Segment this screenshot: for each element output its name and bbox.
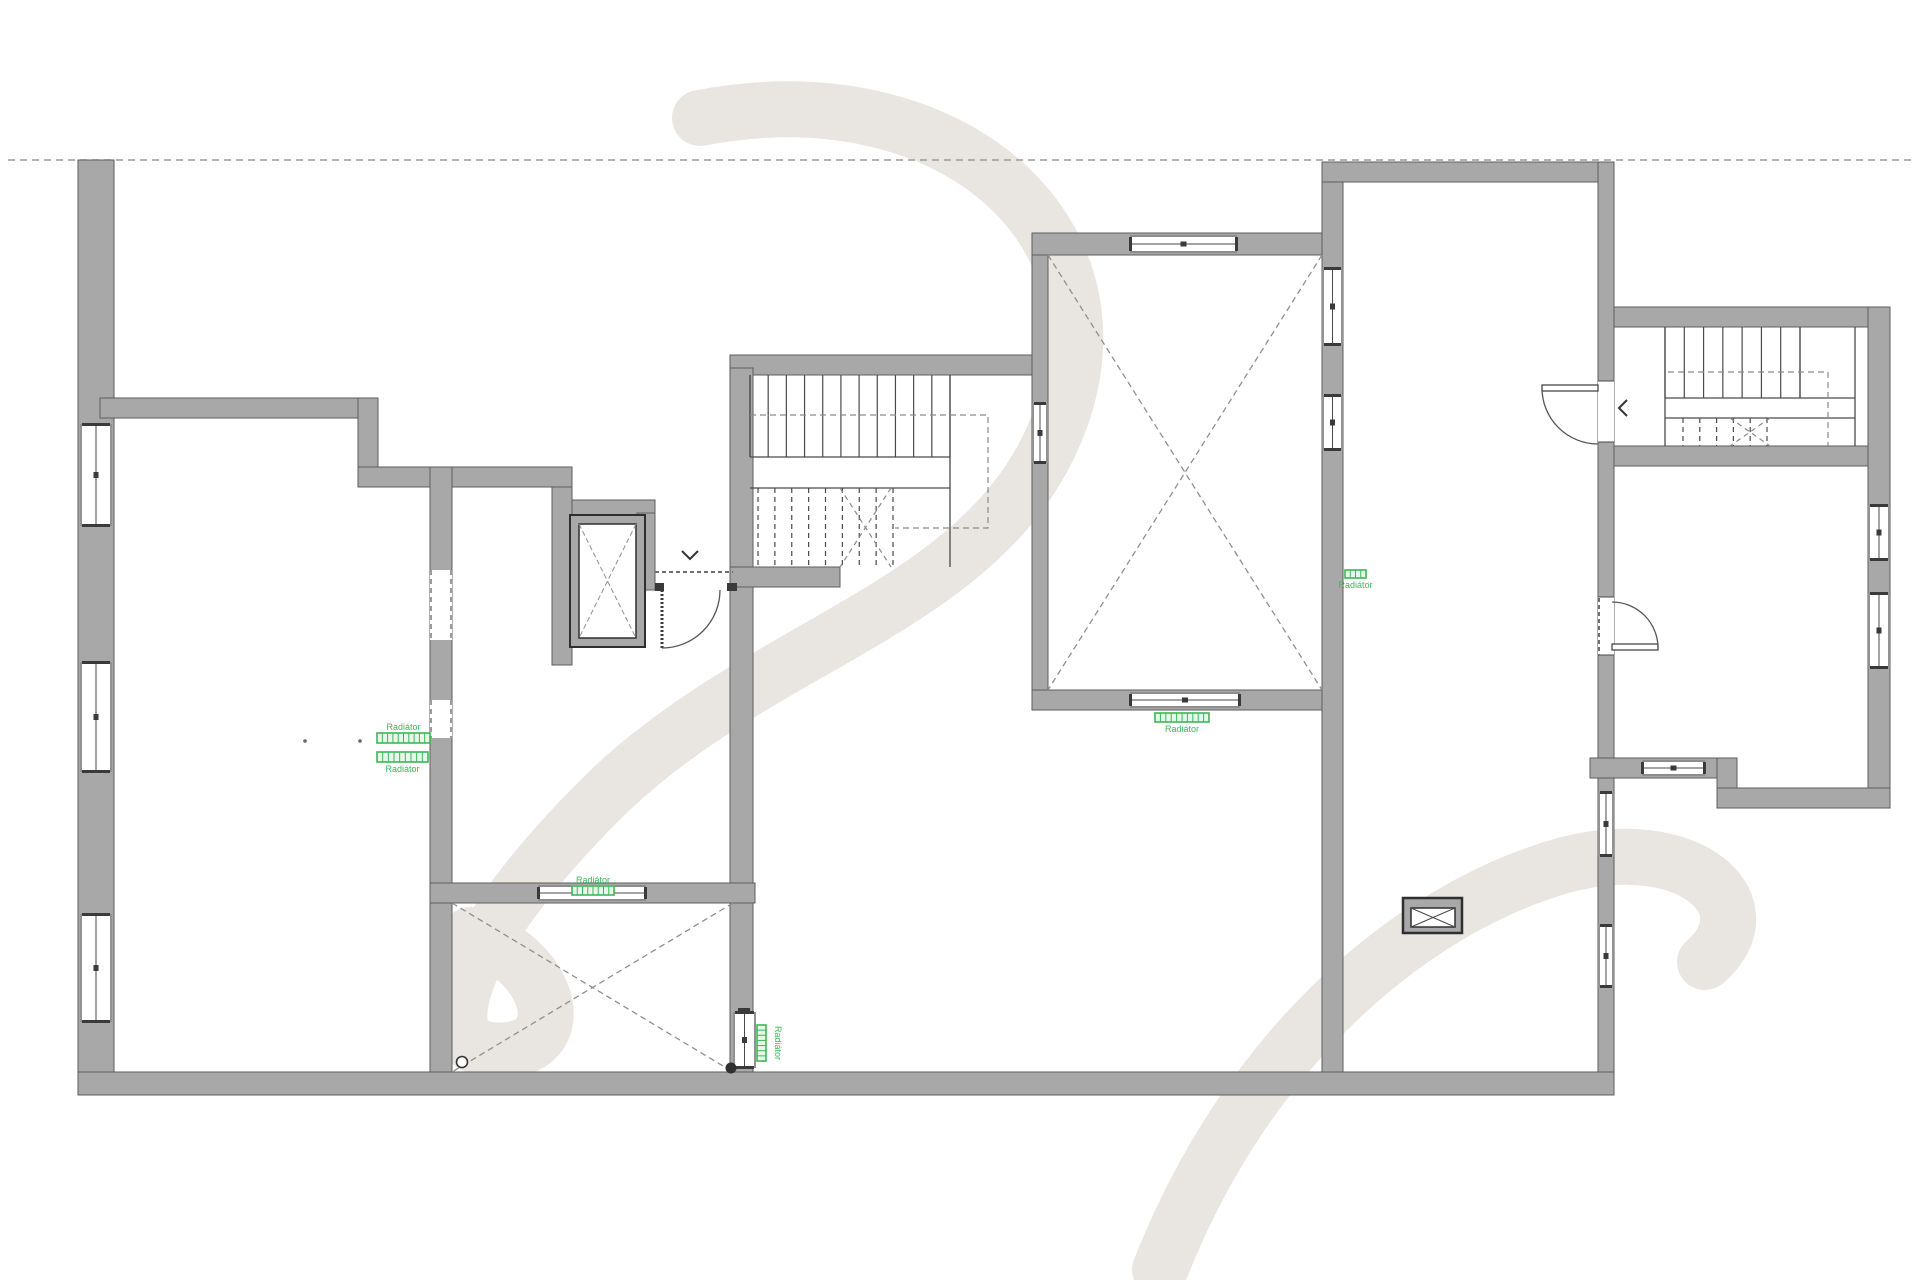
floor-plan-page: RadiátorRadiátorRadiátorRadiátorRadiátor… xyxy=(0,0,1920,1280)
window-center-tick xyxy=(1330,420,1335,426)
window-jamb-tick xyxy=(1324,267,1341,270)
wall xyxy=(730,355,1032,375)
window-jamb-tick xyxy=(82,913,110,916)
wall xyxy=(430,467,452,1072)
door-swing-arc xyxy=(1612,602,1658,648)
window-jamb-tick xyxy=(1703,762,1706,774)
radiator-label: Radiátor xyxy=(576,875,610,885)
doors-layer xyxy=(662,385,1658,650)
window-jamb-tick xyxy=(1324,394,1341,397)
wall xyxy=(1614,446,1868,466)
window-jamb-tick xyxy=(1129,694,1132,706)
window-center-tick xyxy=(1877,628,1882,634)
window-center-tick xyxy=(1604,953,1609,959)
window-center-tick xyxy=(1671,766,1677,771)
window-center-tick xyxy=(1038,430,1043,436)
window-jamb-tick xyxy=(82,524,110,527)
window-jamb-tick xyxy=(1235,237,1238,251)
stair-walkline xyxy=(750,415,988,528)
radiator-label: Radiátor xyxy=(385,764,419,774)
window-center-tick xyxy=(1182,698,1188,703)
window-jamb-tick xyxy=(735,1066,754,1069)
window-jamb-tick xyxy=(1600,854,1612,857)
radiator-label: Radiátor xyxy=(773,1026,783,1060)
window-jamb-tick xyxy=(1870,666,1888,669)
window-center-tick xyxy=(1604,821,1609,827)
window-jamb-tick xyxy=(1324,448,1341,451)
window-jamb-tick xyxy=(82,1020,110,1023)
window-center-tick xyxy=(94,965,99,971)
corner-dot-symbol xyxy=(726,1063,737,1074)
floor-plan-svg: RadiátorRadiátorRadiátorRadiátorRadiátor… xyxy=(0,0,1920,1280)
window-jamb-tick xyxy=(1600,924,1612,927)
wall xyxy=(100,398,378,418)
window-center-tick xyxy=(1181,242,1187,247)
entrance-chevron-down-icon xyxy=(682,551,698,559)
window-jamb-tick xyxy=(537,887,540,899)
plan-dot xyxy=(358,739,362,743)
wall xyxy=(730,567,840,587)
window-jamb-tick xyxy=(82,770,110,773)
door-leaf xyxy=(1612,644,1658,650)
door-swing-arc xyxy=(662,590,720,648)
opening-gap xyxy=(1598,381,1614,442)
stair-break-diagonal xyxy=(840,488,891,567)
door-leaf xyxy=(1542,385,1598,391)
window-jamb-tick xyxy=(1238,694,1241,706)
window-jamb-tick xyxy=(735,1011,754,1014)
window-jamb-tick xyxy=(82,661,110,664)
opening-gap xyxy=(430,570,452,640)
window-jamb-tick xyxy=(1870,504,1888,507)
window-jamb-tick xyxy=(1324,343,1341,346)
window-jamb-tick xyxy=(644,887,647,899)
window-jamb-tick xyxy=(1600,791,1612,794)
radiator xyxy=(377,752,428,762)
shafts-layer xyxy=(452,255,1322,1072)
radiator-label: Radiátor xyxy=(1338,580,1372,590)
stair-walkline xyxy=(1668,372,1828,446)
plan-dot xyxy=(303,739,307,743)
wall xyxy=(1322,162,1614,182)
window-jamb-tick xyxy=(1870,592,1888,595)
window-jamb-tick xyxy=(1641,762,1644,774)
wall xyxy=(1032,233,1048,710)
wall xyxy=(358,467,572,487)
window-jamb-tick xyxy=(1034,461,1046,464)
corner-circle-symbol xyxy=(457,1057,468,1068)
wall xyxy=(78,1072,1614,1095)
window-jamb-tick xyxy=(82,423,110,426)
opening-gap xyxy=(430,700,452,738)
window-center-tick xyxy=(94,714,99,720)
window-jamb-tick xyxy=(1870,558,1888,561)
window-center-tick xyxy=(1877,530,1882,536)
walls-layer xyxy=(78,160,1890,1095)
window-center-tick xyxy=(94,472,99,478)
radiator-label: Radiátor xyxy=(1165,724,1199,734)
window-center-tick xyxy=(1330,304,1335,310)
wall xyxy=(1614,307,1890,327)
door-jamb xyxy=(655,583,664,591)
window-jamb-tick xyxy=(1600,985,1612,988)
wall xyxy=(730,368,753,1072)
window-center-tick xyxy=(742,1037,747,1043)
radiator-label: Radiátor xyxy=(386,722,420,732)
door-swing-arc xyxy=(1542,388,1598,444)
window-jamb-tick xyxy=(1034,402,1046,405)
wall xyxy=(1717,788,1890,808)
door-jamb xyxy=(727,583,737,591)
stair-chevron-left-icon xyxy=(1619,400,1627,416)
window-jamb-tick xyxy=(1129,237,1132,251)
